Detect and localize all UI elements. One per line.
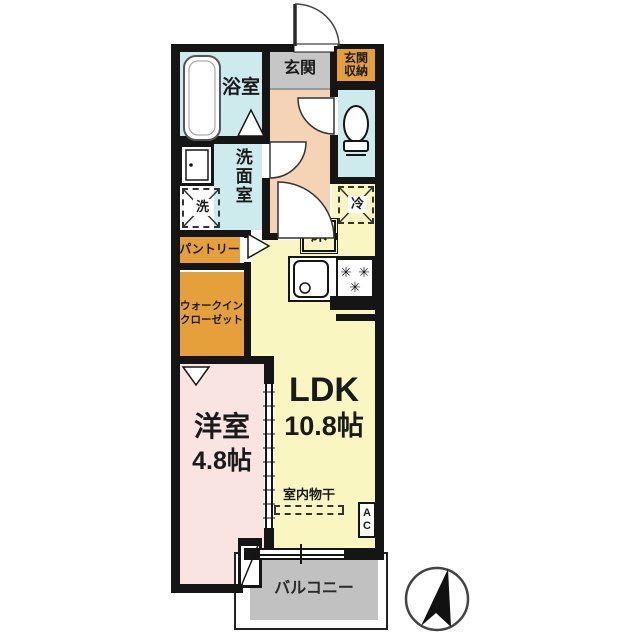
walk-in-closet-label: ウォークイン クローゼット — [179, 300, 244, 327]
entrance-label: 玄関 — [272, 60, 328, 78]
window-center-line — [260, 554, 344, 556]
entrance-step-line — [270, 88, 330, 90]
western-room-name: 洋室 — [180, 412, 264, 443]
wall — [171, 44, 294, 52]
wall — [330, 83, 384, 90]
western-room-size: 4.8帖 — [180, 448, 264, 476]
kitchen-counter-edge — [336, 314, 375, 321]
wall — [264, 356, 274, 384]
indoor-drying-label: 室内物干 — [270, 488, 348, 502]
ac-label-a: A — [363, 507, 371, 520]
entrance-storage-box: 玄関 収納 — [334, 46, 378, 84]
ldk-name: LDK — [274, 372, 374, 409]
wall — [262, 233, 278, 240]
entrance-door-arc — [295, 4, 339, 46]
fridge-label: 冷 — [348, 196, 367, 213]
cabinet-box — [179, 144, 214, 186]
toilet-floor — [338, 90, 375, 177]
wall — [171, 584, 243, 593]
kitchen-counter-edge — [330, 296, 375, 310]
wall — [171, 230, 251, 237]
washroom-label: 洗面室 — [232, 148, 251, 205]
ac-box: A C — [358, 502, 376, 538]
balcony-label: バルコニー — [250, 580, 378, 598]
balcony-window — [260, 548, 344, 560]
wall — [375, 44, 384, 560]
ldk-size: 10.8帖 — [270, 412, 378, 442]
indoor-drying-rail — [274, 505, 344, 515]
wall — [262, 178, 270, 240]
wall — [171, 136, 270, 144]
floor-plan: 床 A C — [0, 0, 640, 640]
wall — [171, 356, 266, 364]
wall — [344, 548, 384, 560]
wall — [244, 548, 260, 560]
entrance-storage-label-2: 収納 — [344, 65, 368, 78]
compass-icon — [402, 562, 474, 636]
bathroom-label: 浴室 — [218, 78, 264, 99]
wall — [330, 177, 384, 184]
ac-label-c: C — [363, 520, 371, 533]
sliding-door — [265, 384, 273, 528]
wic-label-1: ウォークイン — [179, 300, 244, 314]
hallway-floor — [270, 90, 330, 233]
wic-label-2: クローゼット — [179, 314, 244, 328]
floor-hatch-label: 床 — [311, 227, 327, 245]
wall — [171, 263, 251, 270]
pantry-label: パントリー — [179, 243, 240, 256]
pantry-opening — [244, 238, 251, 262]
floor-hatch-box: 床 — [302, 220, 336, 252]
washer-label: 洗 — [193, 199, 212, 216]
